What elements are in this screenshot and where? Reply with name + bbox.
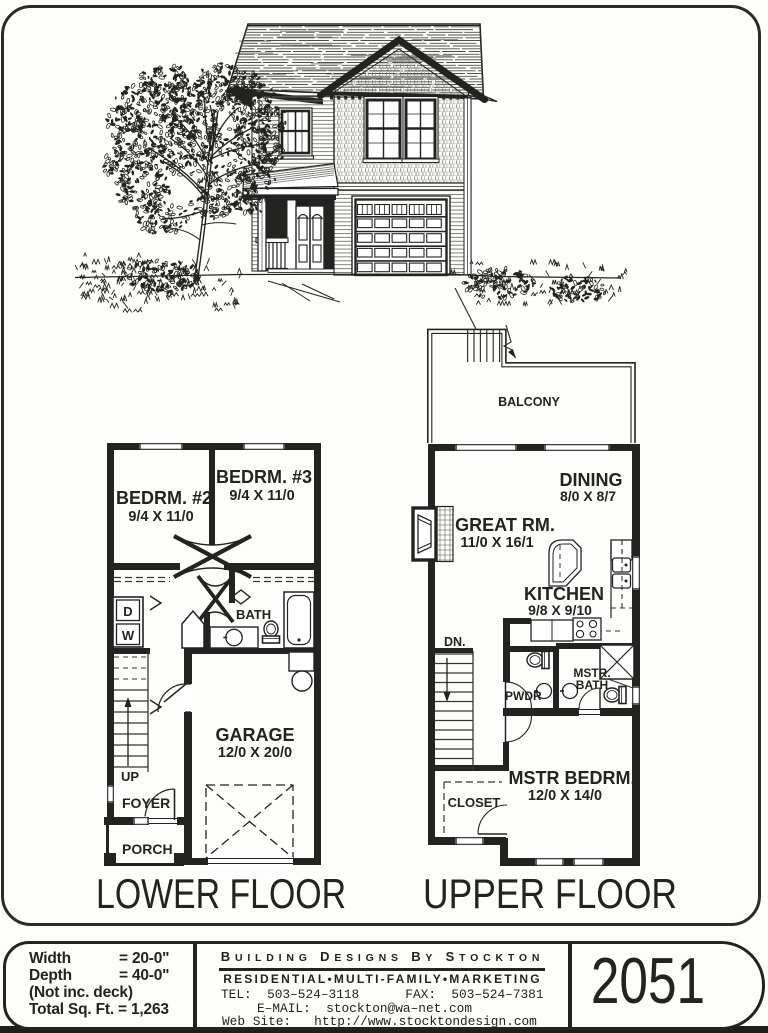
svg-text:PWDR: PWDR	[505, 689, 542, 703]
svg-text:W: W	[122, 628, 135, 643]
svg-text:9/4 X 11/0: 9/4 X 11/0	[229, 488, 294, 504]
svg-text:8/0 X 8/7: 8/0 X 8/7	[560, 488, 616, 504]
svg-text:KITCHEN: KITCHEN	[524, 584, 604, 604]
svg-text:BALCONY: BALCONY	[498, 395, 560, 409]
svg-text:GARAGE: GARAGE	[215, 725, 294, 745]
svg-text:12/0 X 14/0: 12/0 X 14/0	[528, 788, 602, 804]
svg-text:UP: UP	[121, 769, 139, 784]
svg-text:UPPER FLOOR: UPPER FLOOR	[423, 870, 677, 917]
svg-text:11/0 X 16/1: 11/0 X 16/1	[460, 535, 533, 551]
svg-text:BATH: BATH	[236, 607, 271, 622]
svg-text:GREAT RM.: GREAT RM.	[455, 515, 555, 535]
svg-text:9/8 X 9/10: 9/8 X 9/10	[528, 602, 592, 618]
svg-text:DN.: DN.	[444, 635, 466, 649]
svg-text:12/0 X 20/0: 12/0 X 20/0	[218, 745, 292, 761]
svg-text:9/4 X 11/0: 9/4 X 11/0	[128, 509, 193, 525]
svg-text:D: D	[123, 604, 132, 619]
svg-text:MSTR BEDRM.: MSTR BEDRM.	[509, 768, 636, 788]
svg-text:BEDRM. #2: BEDRM. #2	[116, 488, 212, 508]
svg-text:CLOSET: CLOSET	[448, 795, 501, 810]
svg-text:PORCH: PORCH	[122, 841, 173, 857]
svg-text:LOWER FLOOR: LOWER FLOOR	[96, 870, 346, 917]
svg-text:BEDRM. #3: BEDRM. #3	[216, 467, 312, 487]
svg-text:DINING: DINING	[560, 470, 623, 490]
